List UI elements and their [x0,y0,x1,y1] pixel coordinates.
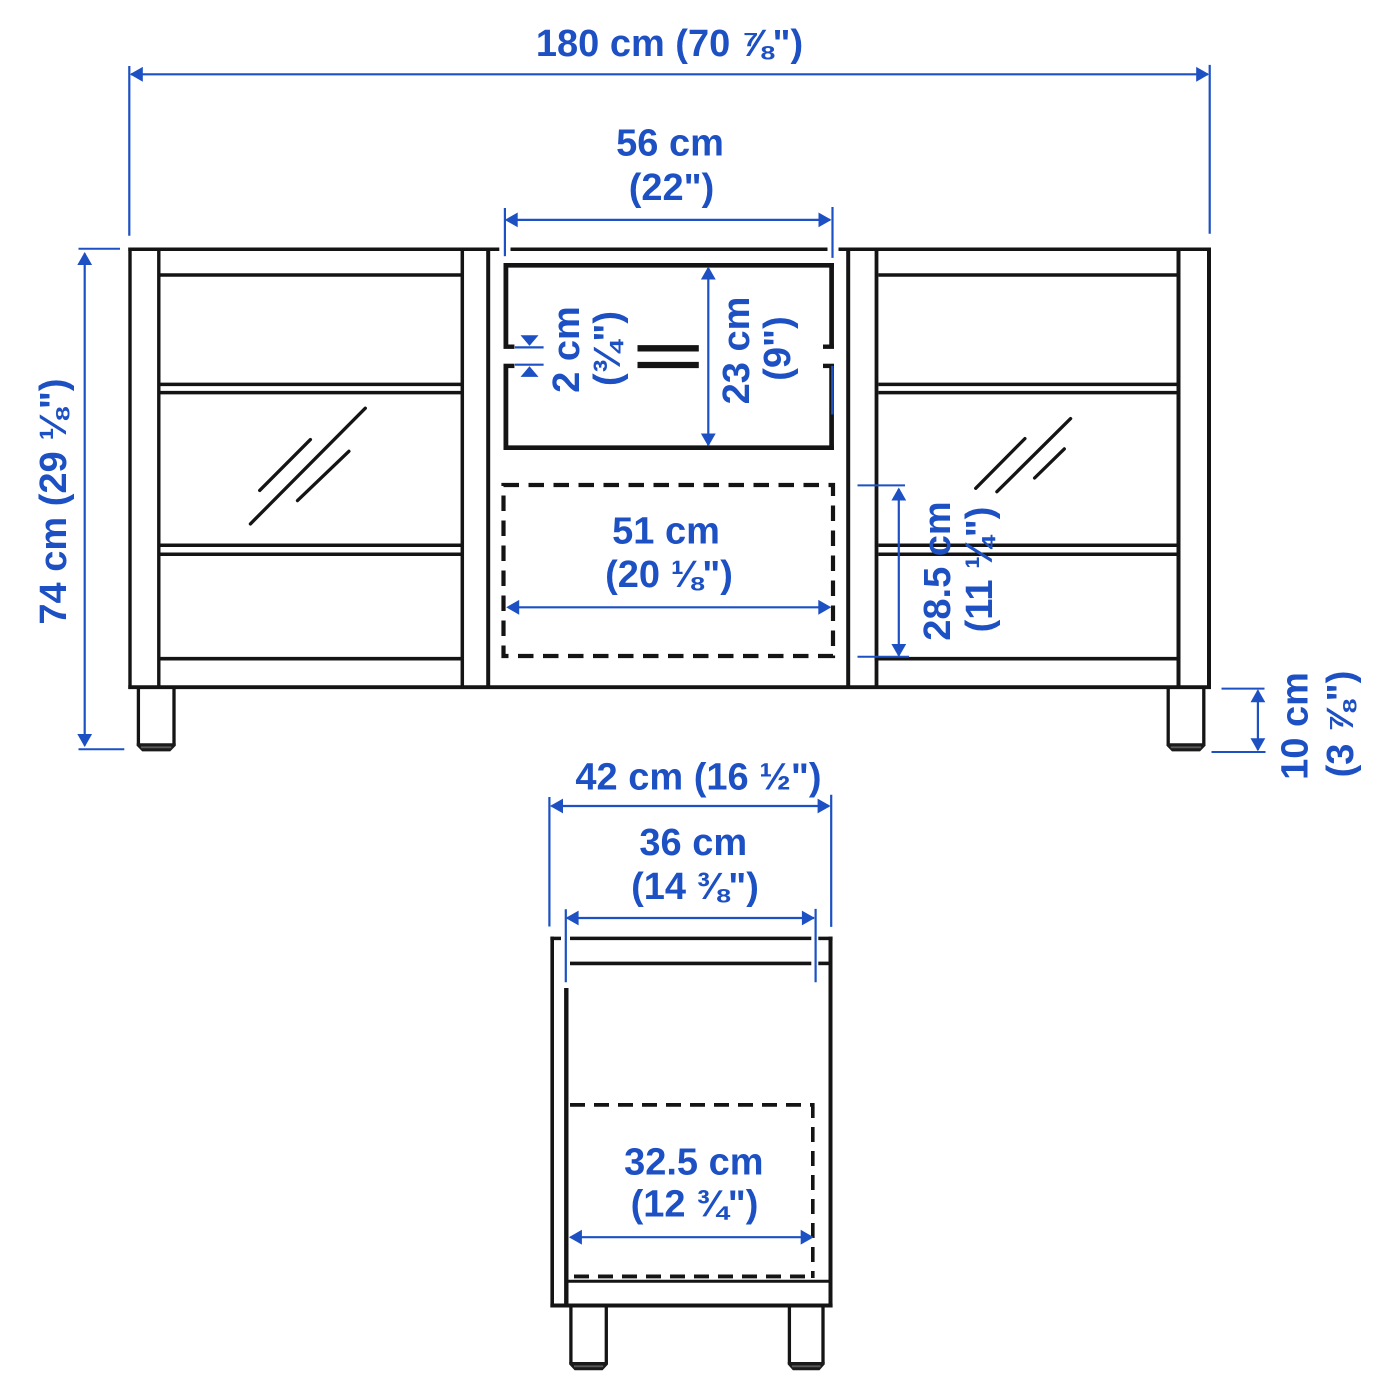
svg-text:42 cm (16 ½"): 42 cm (16 ½") [575,757,821,799]
svg-text:(20 ⅛"): (20 ⅛") [605,554,733,596]
svg-text:(14 ⅜"): (14 ⅜") [631,866,759,908]
svg-text:2 cm: 2 cm [546,306,588,393]
svg-text:10 cm: 10 cm [1275,672,1317,780]
svg-text:(12 ¾"): (12 ¾") [631,1184,759,1226]
svg-text:(22"): (22") [629,167,715,209]
svg-text:28.5 cm: 28.5 cm [917,501,959,640]
svg-text:36 cm: 36 cm [639,822,747,864]
svg-text:(¾"): (¾") [587,311,629,386]
svg-text:32.5 cm: 32.5 cm [624,1142,763,1184]
svg-text:(11 ¼"): (11 ¼") [959,507,1001,633]
svg-text:74 cm (29 ⅛"): 74 cm (29 ⅛") [33,378,75,624]
svg-text:51 cm: 51 cm [612,511,720,553]
svg-text:(3 ⅞"): (3 ⅞") [1320,671,1362,778]
svg-text:23 cm: 23 cm [716,297,758,405]
svg-text:56 cm: 56 cm [616,123,724,165]
svg-text:180 cm (70 ⅞"): 180 cm (70 ⅞") [536,23,803,65]
svg-text:(9"): (9") [757,316,799,380]
